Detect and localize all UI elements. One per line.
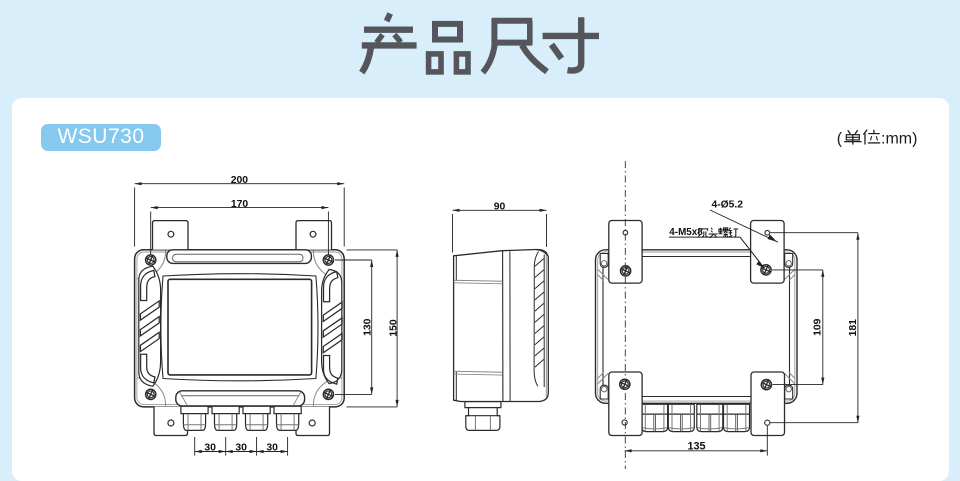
svg-text:150: 150	[389, 319, 400, 337]
svg-text:90: 90	[494, 201, 506, 212]
svg-text:181: 181	[848, 319, 859, 337]
svg-text::mm): :mm)	[881, 131, 917, 148]
svg-text:130: 130	[362, 318, 373, 336]
svg-text:30: 30	[204, 442, 216, 453]
svg-text:(: (	[837, 131, 843, 148]
svg-text:30: 30	[266, 442, 278, 453]
svg-text:109: 109	[813, 318, 824, 336]
svg-text:30: 30	[235, 442, 247, 453]
svg-text:200: 200	[231, 175, 249, 186]
svg-text:4-Ø5.2: 4-Ø5.2	[712, 199, 744, 210]
svg-text:170: 170	[231, 199, 249, 210]
svg-text:135: 135	[687, 440, 705, 452]
